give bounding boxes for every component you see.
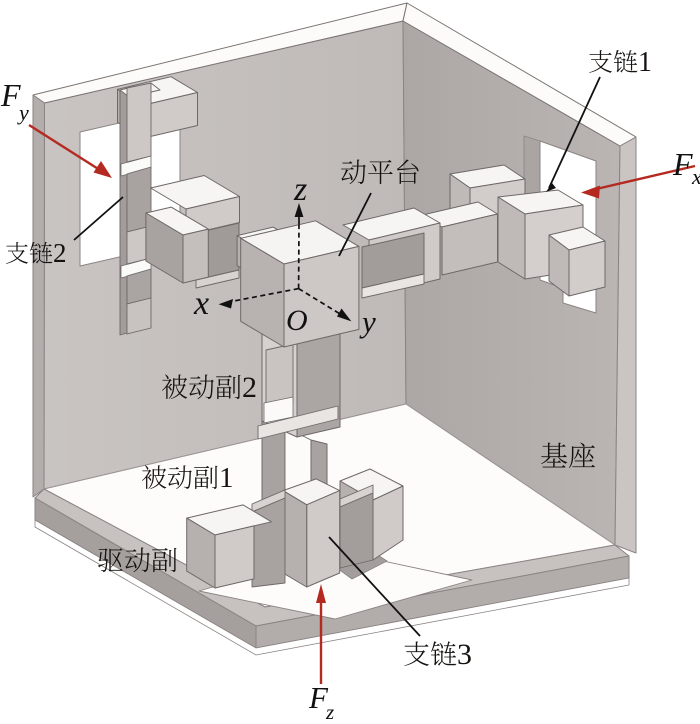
svg-text:2: 2: [242, 371, 257, 404]
svg-text:1: 1: [638, 47, 652, 78]
svg-text:z: z: [325, 700, 334, 724]
svg-text:1: 1: [219, 462, 234, 494]
svg-text:3: 3: [457, 638, 472, 671]
svg-text:O: O: [286, 304, 308, 337]
svg-text:F: F: [0, 77, 21, 113]
svg-text:x: x: [193, 285, 209, 322]
svg-text:F: F: [672, 146, 693, 182]
svg-text:2: 2: [53, 238, 67, 268]
svg-text:y: y: [17, 100, 29, 125]
svg-text:z: z: [293, 171, 307, 208]
svg-text:x: x: [691, 164, 700, 189]
svg-text:y: y: [359, 304, 376, 339]
